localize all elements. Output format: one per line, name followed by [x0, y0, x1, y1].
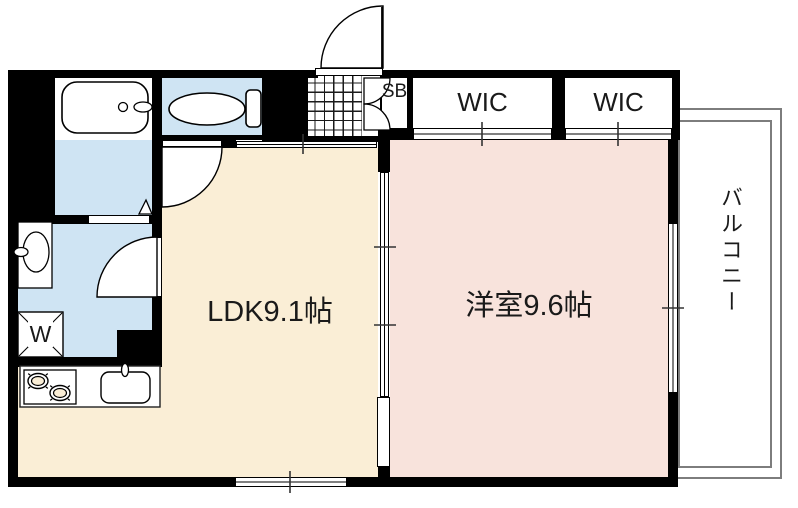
entrance-door-swing-icon [321, 6, 383, 68]
room-toilet [162, 75, 262, 135]
wall-left [8, 70, 18, 487]
partition-door-leaf [377, 397, 390, 467]
wall-washroom-bottom [8, 357, 162, 367]
wall-partition-top [378, 140, 390, 172]
wall-toilet-entrance [262, 70, 308, 138]
bedroom-window [668, 223, 678, 393]
room-ldk-kitchen [18, 367, 378, 477]
ldk-label: LDK9.1帖 [162, 288, 378, 330]
room-bathroom [55, 140, 152, 215]
wall-hall-bit [222, 140, 236, 148]
hall-slider-door [236, 141, 377, 148]
washroom-door-leaf [151, 237, 162, 297]
bedroom-label: 洋室9.6帖 [390, 282, 668, 324]
balcony-label: バルコニー [714, 186, 746, 366]
floor-plan: LDK9.1帖 洋室9.6帖 WIC WIC SB バルコニー W [0, 0, 798, 508]
wic2-closet-door [565, 128, 672, 140]
toilet-door-leaf [162, 140, 222, 147]
wall-washroom-corner [117, 330, 152, 357]
ldk-window [235, 477, 347, 487]
wic2-label: WIC [565, 77, 672, 128]
wall-partition-bottom [378, 467, 390, 487]
wall-pipe-space-block [18, 70, 55, 215]
wall-right-upper [672, 70, 680, 140]
wall-wic-divider [552, 70, 565, 140]
entrance-threshold [315, 68, 383, 76]
room-bath-tub-area [55, 75, 152, 140]
bathroom-door [88, 215, 150, 224]
wall-bath-right-column [152, 70, 162, 360]
room-entrance [305, 76, 363, 140]
wic1-closet-door [413, 128, 552, 140]
washer-label: W [18, 321, 63, 348]
washer-letter: W [28, 321, 54, 347]
shoebox-label: SB [381, 80, 408, 103]
partition-slider-door [380, 172, 389, 397]
wic1-label: WIC [413, 77, 552, 128]
